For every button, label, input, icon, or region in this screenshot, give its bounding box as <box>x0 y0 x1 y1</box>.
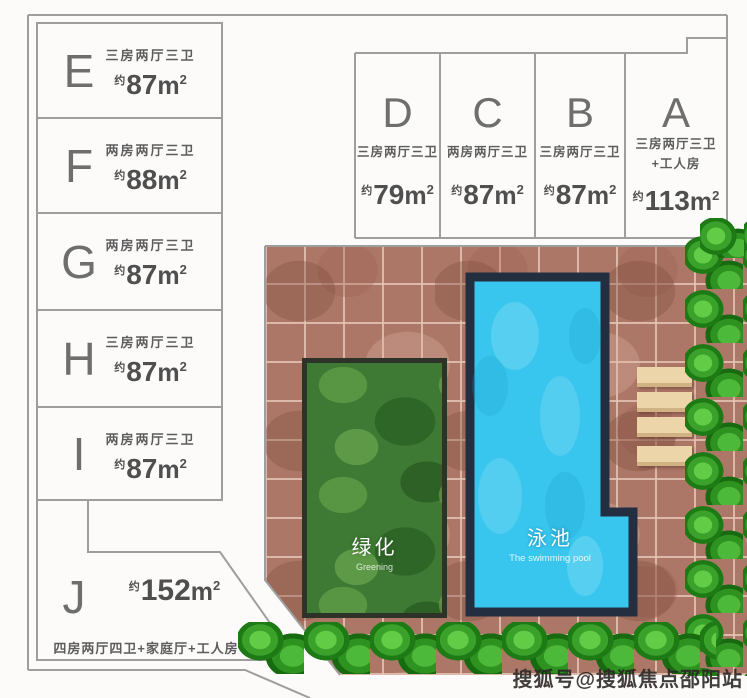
unit-cell-D: D 三房两厅三卫 约79m2 <box>355 53 440 238</box>
area-unit: m <box>494 182 516 210</box>
approx-label: 约 <box>114 362 125 374</box>
unit-type: 四房两厅四卫+家庭厅+工人房 <box>37 638 255 657</box>
area-unit: m <box>157 456 179 484</box>
unit-area: 约87m2 <box>95 259 206 291</box>
unit-area: 约79m2 <box>355 179 440 211</box>
approx-label: 约 <box>544 185 555 197</box>
area-value: 79 <box>373 179 404 210</box>
area-value: 87 <box>126 453 157 484</box>
area-unit: m <box>690 188 712 216</box>
area-exponent: 2 <box>213 578 220 593</box>
area-exponent: 2 <box>180 456 187 471</box>
greening-label: 绿化 Greening <box>307 531 442 572</box>
sun-bench <box>637 392 692 412</box>
unit-area: 约87m2 <box>95 356 206 388</box>
area-value: 152 <box>141 574 191 607</box>
area-exponent: 2 <box>427 182 434 197</box>
area-value: 113 <box>645 185 690 216</box>
area-unit: m <box>157 72 179 100</box>
unit-cell-C: C 两房两厅三卫 约87m2 <box>440 53 535 238</box>
unit-area: 约113m2 <box>625 185 727 217</box>
greening-label-cn: 绿化 <box>307 531 442 560</box>
pool-label-en: The swimming pool <box>475 553 625 564</box>
area-exponent: 2 <box>517 182 524 197</box>
unit-cell-E: E 三房两厅三卫 约87m2 <box>37 23 222 118</box>
area-unit: m <box>157 167 179 195</box>
area-exponent: 2 <box>712 188 719 203</box>
approx-label: 约 <box>114 75 125 87</box>
site-plan: 绿化 Greening 泳池 The swimming pool <box>0 0 747 698</box>
sun-bench <box>637 367 692 387</box>
area-exponent: 2 <box>180 72 187 87</box>
unit-cell-G: G 两房两厅三卫 约87m2 <box>37 213 222 310</box>
sun-bench <box>637 446 692 466</box>
unit-type: 三房两厅三卫 <box>95 45 206 64</box>
unit-type: 三房两厅三卫 <box>95 332 206 351</box>
approx-label: 约 <box>633 191 644 203</box>
area-value: 87 <box>126 259 157 290</box>
unit-cell-B: B 三房两厅三卫 约87m2 <box>535 53 625 238</box>
unit-type: 两房两厅三卫 <box>440 141 535 160</box>
approx-label: 约 <box>361 185 372 197</box>
tiled-plaza: 绿化 Greening 泳池 The swimming pool <box>265 246 747 675</box>
area-exponent: 2 <box>609 182 616 197</box>
sun-bench <box>637 417 692 437</box>
unit-area: 约87m2 <box>95 453 206 485</box>
area-unit: m <box>157 359 179 387</box>
unit-cell-J: J 约152m2 四房两厅四卫+家庭厅+工人房 <box>37 552 283 662</box>
unit-area: 约87m2 <box>535 179 625 211</box>
unit-letter: D <box>355 89 440 137</box>
area-unit: m <box>404 182 426 210</box>
area-value: 87 <box>126 356 157 387</box>
unit-area: 约87m2 <box>440 179 535 211</box>
greening-label-en: Greening <box>307 562 442 572</box>
unit-letter: J <box>52 570 96 624</box>
unit-type: 两房两厅三卫 <box>95 429 206 448</box>
area-unit: m <box>157 262 179 290</box>
area-value: 88 <box>126 164 157 195</box>
unit-type: 两房两厅三卫 <box>95 140 206 159</box>
pool-label-cn: 泳池 <box>475 522 625 551</box>
unit-cell-F: F 两房两厅三卫 约88m2 <box>37 118 222 213</box>
unit-cell-H: H 三房两厅三卫 约87m2 <box>37 310 222 407</box>
pool-label: 泳池 The swimming pool <box>475 522 625 564</box>
unit-type-extra: +工人房 <box>625 153 727 172</box>
area-exponent: 2 <box>180 262 187 277</box>
approx-label: 约 <box>114 459 125 471</box>
unit-type: 三房两厅三卫 <box>535 141 625 160</box>
unit-type: 三房两厅三卫 <box>625 133 727 152</box>
area-unit: m <box>587 182 609 210</box>
approx-label: 约 <box>129 581 140 593</box>
unit-area: 约87m2 <box>95 69 206 101</box>
approx-label: 约 <box>114 170 125 182</box>
unit-cell-I: I 两房两厅三卫 约87m2 <box>37 407 222 500</box>
unit-letter: A <box>625 89 727 137</box>
unit-letter: C <box>440 89 535 137</box>
unit-type: 三房两厅三卫 <box>355 141 440 160</box>
unit-letter: B <box>535 89 625 137</box>
area-value: 87 <box>126 69 157 100</box>
approx-label: 约 <box>451 185 462 197</box>
area-value: 87 <box>556 179 587 210</box>
unit-type: 两房两厅三卫 <box>95 235 206 254</box>
unit-cell-A: A 三房两厅三卫 +工人房 约113m2 <box>625 53 727 238</box>
approx-label: 约 <box>114 265 125 277</box>
area-value: 87 <box>463 179 494 210</box>
area-unit: m <box>191 578 213 606</box>
area-exponent: 2 <box>180 167 187 182</box>
watermark-text: 搜狐号@搜狐焦点邵阳站 <box>500 663 743 692</box>
unit-area: 约152m2 <box>97 574 252 608</box>
unit-area: 约88m2 <box>95 164 206 196</box>
area-exponent: 2 <box>180 359 187 374</box>
